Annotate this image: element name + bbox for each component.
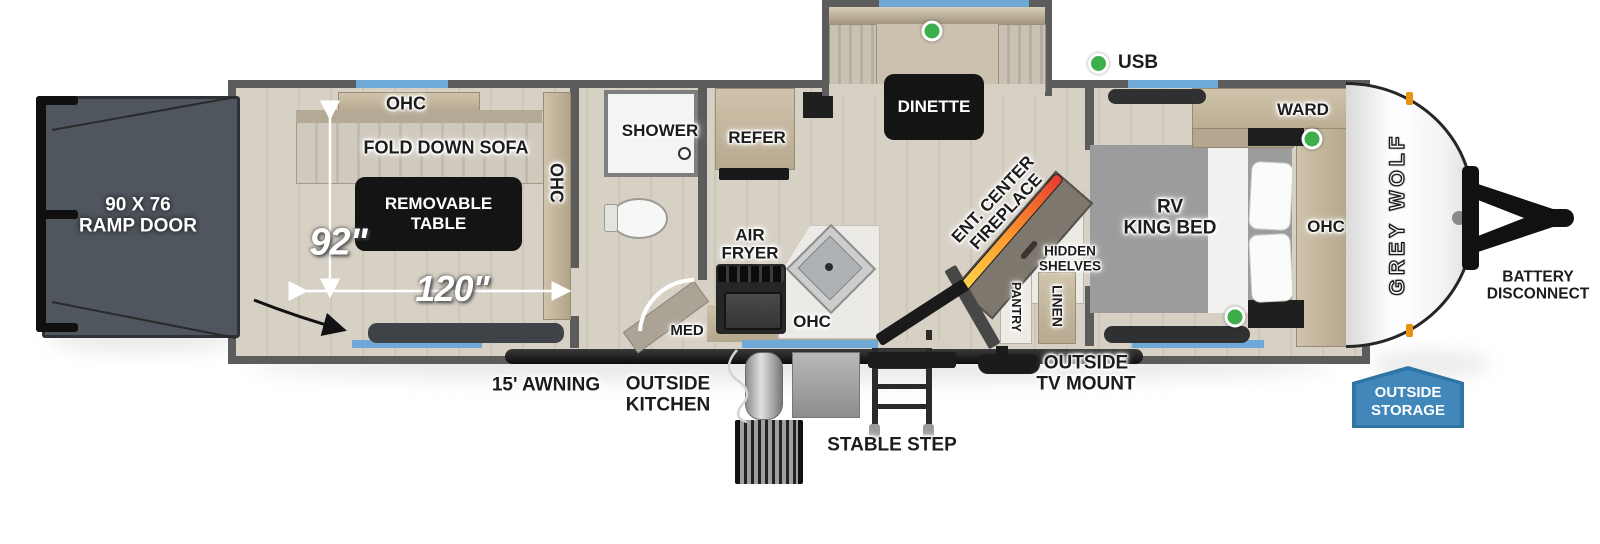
front-cap (1346, 82, 1474, 348)
grill (735, 420, 803, 484)
dinette-seat-right (998, 24, 1046, 92)
entry-door-opening (878, 340, 958, 348)
bedroom-valance-top (1108, 89, 1206, 104)
outside-tv-mount-bar (978, 354, 1040, 374)
garage-bath-wall (570, 88, 579, 268)
kitchen-ohc-label: OHC (793, 313, 831, 331)
garage-bench (368, 323, 564, 343)
ramp-door-label: 90 X 76 RAMP DOOR (79, 195, 197, 236)
usb-legend: USB (1088, 52, 1158, 74)
med-label: MED (670, 323, 703, 339)
ramp-door-frame-stub-top (36, 96, 78, 105)
usb-indicator-dot (1302, 129, 1323, 150)
brand-logo: GREY WOLF (1386, 133, 1410, 296)
toilet-bowl (610, 198, 668, 239)
bed-pillow (1248, 233, 1294, 303)
bed-pillow (1248, 161, 1294, 231)
garage-length-dim: 120" (415, 268, 488, 310)
dinette-seat-left (829, 24, 877, 92)
bedroom-valance-bottom (1104, 326, 1250, 343)
window-strip (356, 80, 448, 88)
hitch-tongue (1540, 209, 1574, 227)
usb-legend-dot (1088, 53, 1109, 74)
bed-base-bottom (1248, 300, 1304, 328)
range-burner-grate (718, 266, 784, 282)
floorplan-canvas: 90 X 76 RAMP DOOR REMOVABLE TABLE OHC FO… (0, 0, 1600, 544)
outside-tv-mount-stub (996, 346, 1008, 356)
bed-base-top (1248, 128, 1304, 146)
garage-ohc-top-label: OHC (386, 94, 426, 113)
garage-ohc-right-label: OHC (546, 163, 565, 203)
garage-width-dim: 92" (309, 222, 366, 265)
clearance-marker (1406, 92, 1413, 105)
outside-tv-mount-label: OUTSIDE TV MOUNT (1036, 353, 1135, 394)
fold-down-sofa-label: FOLD DOWN SOFA (364, 138, 529, 157)
hitch-a-frame (1478, 184, 1556, 252)
removable-table-label: REMOVABLE TABLE (385, 194, 492, 233)
refer-label: REFER (728, 129, 786, 147)
bedroom-wall-top (1085, 88, 1094, 150)
ward-label: WARD (1277, 101, 1329, 119)
outside-kitchen-tank (745, 352, 783, 420)
dinette-label: DINETTE (898, 97, 971, 117)
bath-kitchen-wall (698, 88, 707, 280)
sink-drain (825, 263, 833, 271)
outside-storage-label: OUTSIDE STORAGE (1371, 384, 1445, 419)
window-strip (1128, 80, 1218, 88)
outside-kitchen-label: OUTSIDE KITCHEN (626, 374, 710, 415)
air-fryer-label: AIR FRYER (722, 227, 779, 264)
stable-step-label: STABLE STEP (827, 436, 957, 457)
outside-kitchen-griddle (792, 352, 860, 418)
dinette-slide-window (879, 0, 1029, 7)
step-ladder-rung (872, 404, 932, 409)
bedroom-ohc-label: OHC (1307, 218, 1345, 236)
garage-ohc-right-cabinet (543, 92, 571, 320)
ramp-door-frame-stub-bottom (36, 323, 78, 332)
refrigerator-base (719, 168, 789, 180)
pantry-label: PANTRY (1008, 282, 1022, 332)
entry-door-strip (742, 340, 878, 348)
removable-table: REMOVABLE TABLE (355, 177, 522, 251)
shower-label: SHOWER (622, 122, 699, 140)
usb-legend-label: USB (1118, 52, 1158, 74)
dinette-table: DINETTE (884, 74, 984, 140)
garage-bath-wall-stub (570, 316, 579, 348)
awning-label: 15' AWNING (492, 376, 600, 397)
entry-step-platform (868, 352, 956, 368)
ramp-door-frame-stub-mid (36, 210, 78, 219)
rv-king-bed-label: RV KING BED (1124, 197, 1217, 238)
step-ladder-rung (872, 384, 932, 389)
linen-label: LINEN (1049, 285, 1064, 327)
battery-disconnect-label: BATTERY DISCONNECT (1487, 269, 1589, 302)
hidden-shelves-label: HIDDEN SHELVES (1039, 244, 1101, 273)
toilet-tank (604, 204, 618, 232)
range-oven-door (724, 292, 782, 330)
shower-drain (678, 147, 691, 160)
clearance-marker (1406, 324, 1413, 337)
usb-indicator-dot (1225, 307, 1246, 328)
usb-indicator-dot (922, 21, 943, 42)
